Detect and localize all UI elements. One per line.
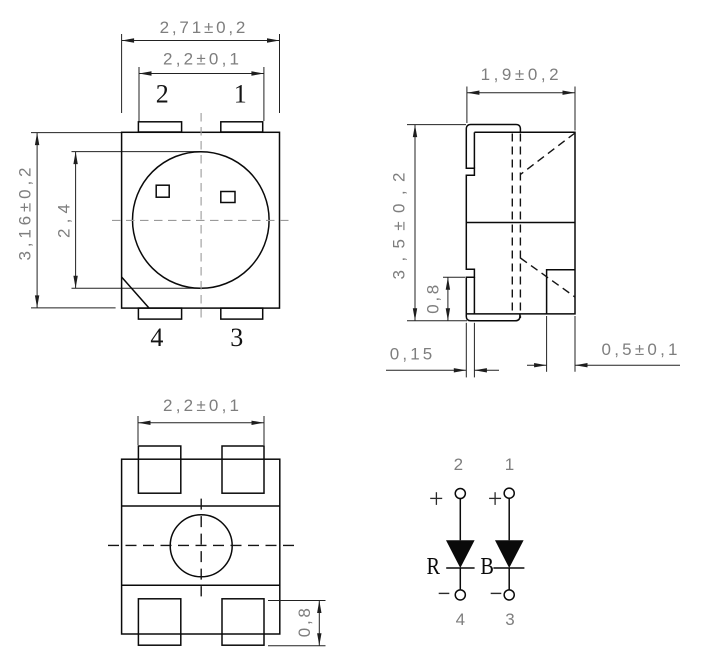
svg-text:1: 1	[505, 455, 514, 474]
svg-text:4: 4	[456, 610, 465, 629]
svg-text:0,8: 0,8	[295, 608, 314, 637]
svg-text:1: 1	[234, 80, 247, 109]
svg-text:3: 3	[230, 323, 243, 352]
svg-text:2,4: 2,4	[55, 204, 74, 238]
svg-text:B: B	[480, 554, 494, 580]
svg-text:R: R	[427, 554, 441, 580]
svg-text:2: 2	[454, 455, 463, 474]
svg-text:0,8: 0,8	[424, 285, 443, 314]
svg-text:0,15: 0,15	[390, 345, 433, 364]
svg-text:4: 4	[150, 323, 163, 352]
svg-text:3: 3	[505, 610, 514, 629]
svg-text:2: 2	[156, 80, 169, 109]
